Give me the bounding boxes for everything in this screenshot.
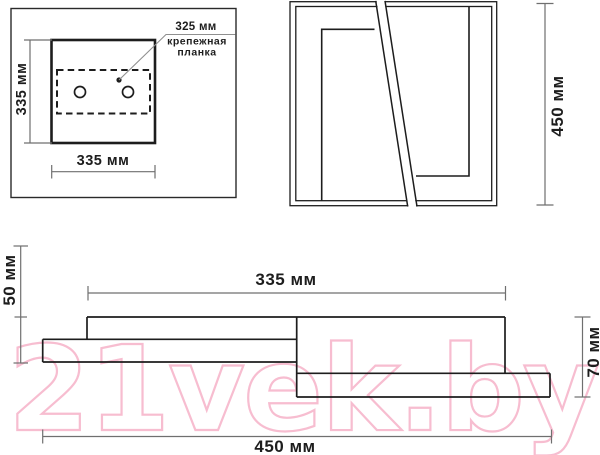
front-right-panel-edge: [416, 7, 469, 177]
side-view-right-height-label: 70 мм: [584, 326, 600, 377]
top-view-height-dimension-label: 335 мм: [14, 63, 30, 116]
side-view-left-height-label: 50 мм: [0, 254, 20, 305]
watermark-text: 21vek.by: [8, 320, 598, 455]
diagonal-edge-left: [376, 1, 408, 207]
mounting-plate-caption: крепежная планка: [167, 37, 227, 60]
drawing-canvas: 21vek.by: [0, 0, 600, 455]
technical-drawing-page: 21vek.by: [0, 0, 600, 455]
side-view-body-width-label: 335 мм: [255, 270, 316, 290]
front-left-panel-edge: [322, 29, 375, 200]
diagonal-gap-mask: [377, 1, 417, 207]
front-view-group: [290, 1, 554, 207]
mounting-plate-caption-line2: планка: [167, 48, 227, 59]
mounting-hole-right: [123, 87, 134, 98]
diagonal-edge-right: [385, 1, 417, 207]
fixture-body-outline: [52, 40, 156, 143]
side-view-total-width-label: 450 мм: [254, 437, 315, 455]
top-view-width-dimension-label: 335 мм: [77, 153, 130, 169]
front-view-height-dimension-label: 450 мм: [548, 75, 568, 136]
plate-width-dimension-label: 325 мм: [175, 21, 216, 33]
mounting-plate-dashed-outline: [57, 70, 150, 114]
mounting-hole-left: [75, 87, 86, 98]
